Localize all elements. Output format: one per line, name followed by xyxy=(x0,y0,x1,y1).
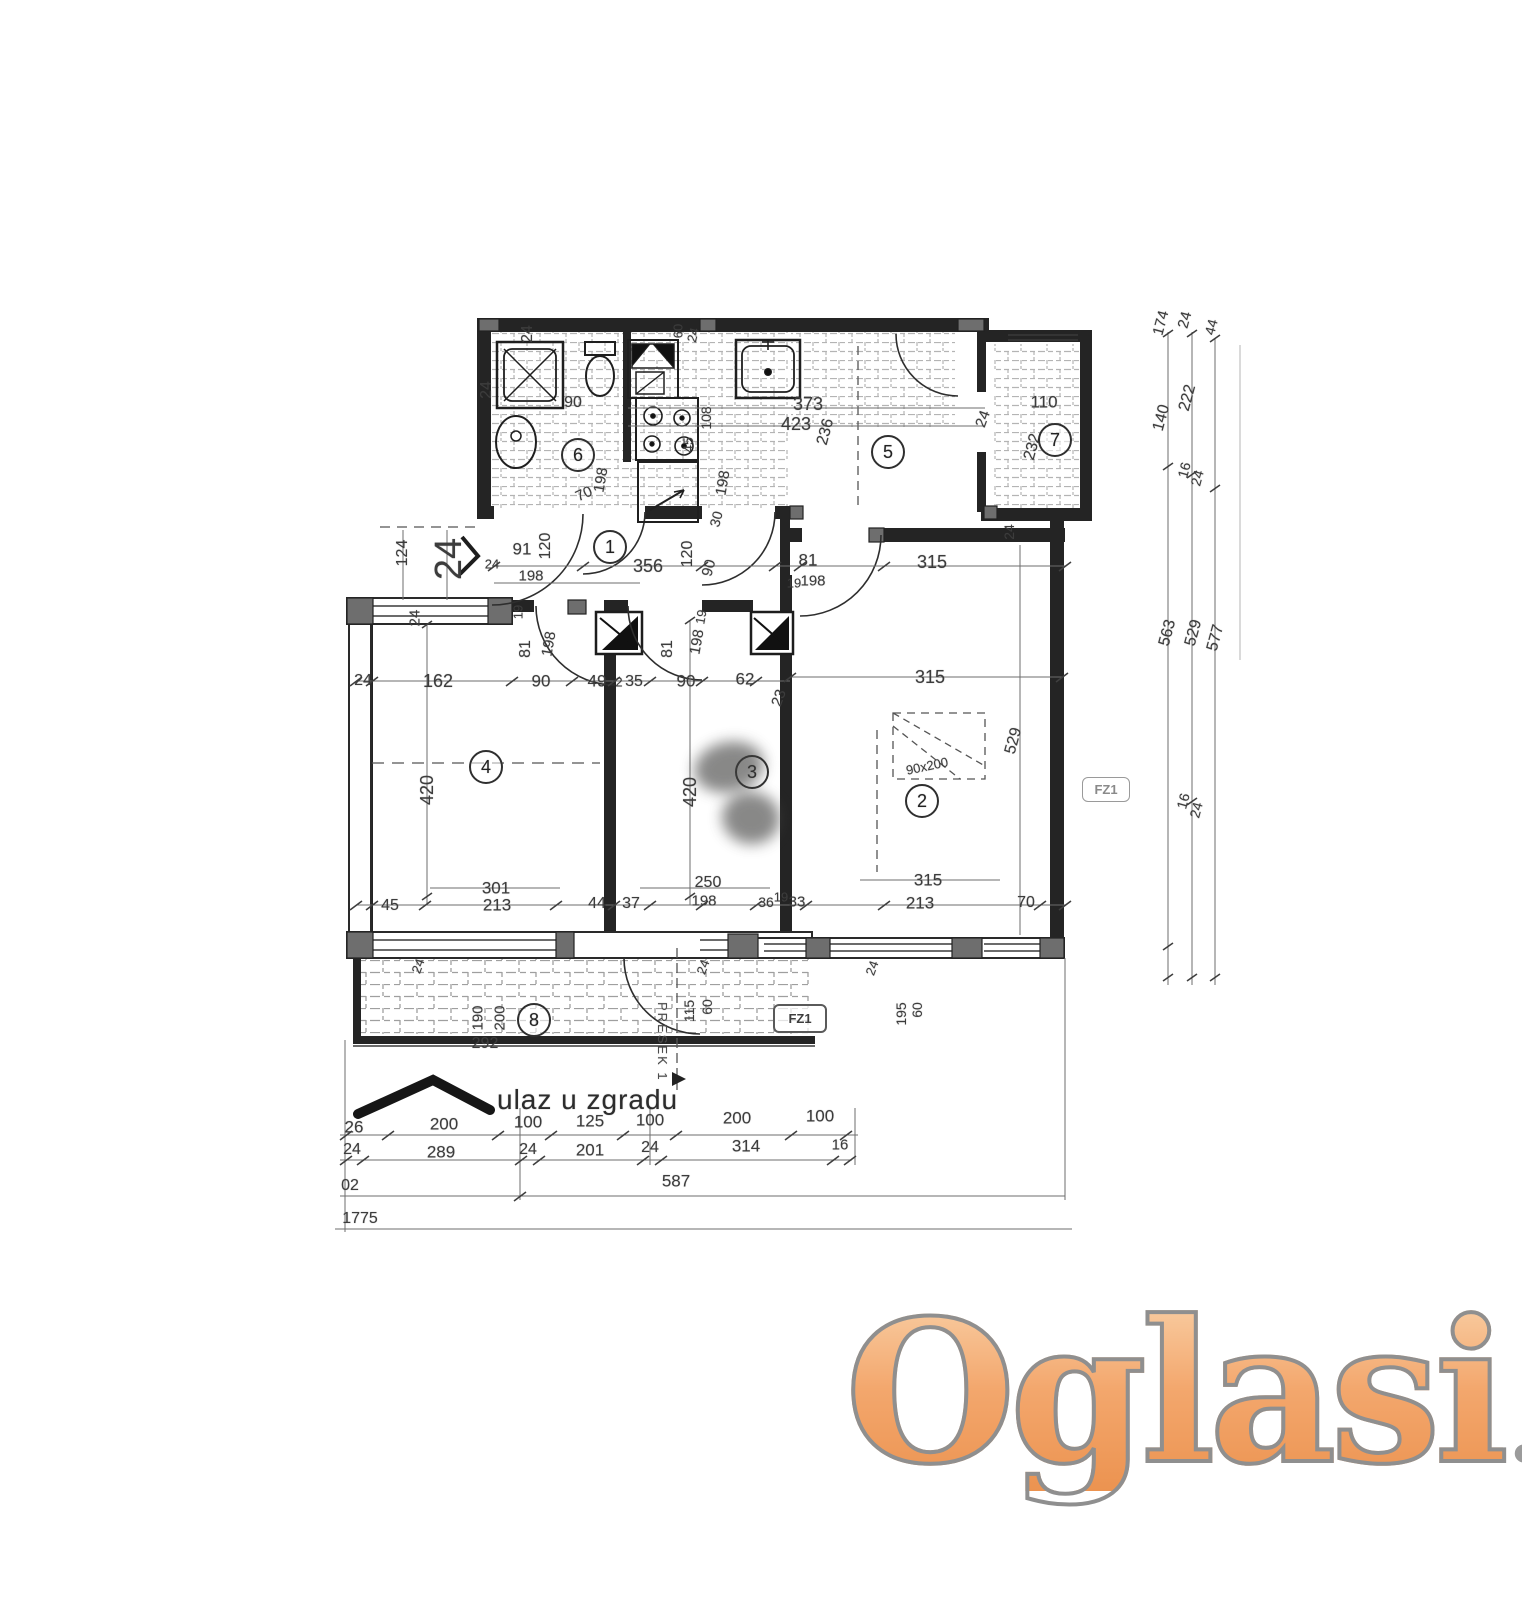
dim-label: 24 xyxy=(1176,310,1195,330)
dim-label: 90 xyxy=(700,558,719,578)
window-tag-fz1-right: FZ1 xyxy=(1082,777,1130,802)
dim-label: 315 xyxy=(915,668,945,686)
dim-label: 60 xyxy=(910,1002,924,1018)
oglasi-logo-tld: .rs xyxy=(1507,1380,1522,1476)
dim-label: 90 xyxy=(677,673,696,690)
dim-label: 587 xyxy=(662,1173,690,1190)
dim-label: 110 xyxy=(1030,394,1057,411)
dim-label: 423 xyxy=(781,415,811,433)
dim-label: 24 xyxy=(1187,801,1205,820)
dim-label: 201 xyxy=(576,1142,604,1159)
oglasi-logo: Oglasi .rs xyxy=(845,1295,1465,1491)
dim-label: 420 xyxy=(418,775,436,805)
dim-label: 36 xyxy=(758,895,774,909)
dim-label: 301 xyxy=(482,880,510,897)
dim-label: 213 xyxy=(483,897,511,914)
dim-label: 100 xyxy=(806,1108,834,1125)
dim-label: 120 xyxy=(680,541,696,568)
dim-label: 44 xyxy=(588,896,606,912)
dim-label: 45 xyxy=(681,437,695,453)
dim-label: 198 xyxy=(687,628,706,655)
dim-label: 314 xyxy=(732,1138,760,1155)
dim-label: 60 xyxy=(700,999,714,1015)
dim-label: 100 xyxy=(514,1114,542,1131)
dim-label: 24 xyxy=(354,673,372,689)
dim-label: 81 xyxy=(660,640,676,658)
oglasi-logo-word: Oglasi xyxy=(845,1295,1503,1491)
dim-label: 315 xyxy=(914,872,942,889)
dim-label: 2 xyxy=(615,676,622,689)
dim-label: 373 xyxy=(793,395,823,413)
dim-label: 198 xyxy=(691,894,716,909)
room-number-5: 5 xyxy=(871,435,905,469)
dim-label: 33 xyxy=(789,895,806,910)
dim-label: 24 xyxy=(408,610,423,627)
dim-label: 200 xyxy=(430,1116,458,1133)
dim-label: 02 xyxy=(341,1178,359,1194)
dim-label: 289 xyxy=(427,1144,455,1161)
dim-label: 81 xyxy=(799,552,818,569)
dim-label: 19 xyxy=(787,577,801,590)
dim-label: 420 xyxy=(681,777,699,807)
dim-label: 24 xyxy=(1002,524,1016,540)
dim-label: 198 xyxy=(591,466,610,493)
dim-label: 60 xyxy=(672,324,685,338)
dim-label: 24 xyxy=(479,381,495,399)
dim-label: 108 xyxy=(699,406,713,429)
tiled-floors xyxy=(360,332,1079,1034)
dim-label: 19 xyxy=(512,605,525,619)
room-number-8: 8 xyxy=(517,1003,551,1037)
room-number-4: 4 xyxy=(469,750,503,784)
dim-label: 49 xyxy=(588,673,607,690)
entrance-label: ulaz u zgradu xyxy=(497,1084,678,1116)
room-number-6: 6 xyxy=(561,438,595,472)
dim-label: 315 xyxy=(917,553,947,571)
dim-label: 91 xyxy=(513,541,532,558)
dim-label: 356 xyxy=(633,557,663,575)
dim-label: 198 xyxy=(518,569,543,584)
dim-label: 24 xyxy=(485,558,499,571)
dim-label: 24 xyxy=(430,538,468,580)
dim-label: 200 xyxy=(723,1110,751,1127)
dim-label: 16 xyxy=(832,1138,849,1153)
dim-label: 213 xyxy=(906,895,934,912)
dim-label: 198 xyxy=(539,630,558,657)
dim-label: 37 xyxy=(622,896,640,912)
dim-label: 195 xyxy=(894,1002,908,1025)
dim-label: 44 xyxy=(1202,318,1220,337)
dim-label: 124 xyxy=(395,540,411,567)
dim-label: 198 xyxy=(713,469,732,496)
dim-label: 198 xyxy=(800,574,825,589)
dim-label: 1775 xyxy=(342,1211,378,1227)
dim-label: 19 xyxy=(693,609,708,626)
dim-label: 24 xyxy=(1188,469,1206,488)
dim-label: 162 xyxy=(423,672,453,690)
room-number-7: 7 xyxy=(1038,423,1072,457)
window-tag-fz1-bottom: FZ1 xyxy=(773,1004,827,1033)
dim-label: 26 xyxy=(345,1119,364,1136)
dim-label: 24 xyxy=(520,325,536,343)
dim-label: 190 xyxy=(471,1005,486,1030)
room-number-2: 2 xyxy=(905,784,939,818)
dim-label: 200 xyxy=(493,1005,508,1030)
dim-label: 120 xyxy=(538,533,554,560)
dim-label: 62 xyxy=(736,671,755,688)
dim-label: 70 xyxy=(1017,895,1035,911)
dim-label: 81 xyxy=(518,640,534,658)
dim-label: 90 xyxy=(564,395,582,411)
dim-label: 19 xyxy=(774,891,788,904)
entrance-arrow-icon xyxy=(358,1080,490,1114)
dim-label: 35 xyxy=(625,674,643,690)
dim-label: 24 xyxy=(519,1142,537,1158)
dim-label: 24 xyxy=(685,326,701,343)
dim-label: 115 xyxy=(682,1000,696,1022)
dim-label: 30 xyxy=(707,510,725,529)
section-label: PRESEK 1 xyxy=(655,1002,670,1082)
dim-label: 24 xyxy=(343,1142,361,1158)
dim-label: 250 xyxy=(695,875,722,891)
dim-label: 90 xyxy=(532,673,551,690)
floorplan-page: 2424906024373423236108451987019830110232… xyxy=(0,0,1522,1600)
dim-label: 24 xyxy=(641,1140,659,1156)
dim-label: 45 xyxy=(381,898,399,914)
dim-label: 292 xyxy=(472,1036,499,1052)
room-number-1: 1 xyxy=(593,530,627,564)
